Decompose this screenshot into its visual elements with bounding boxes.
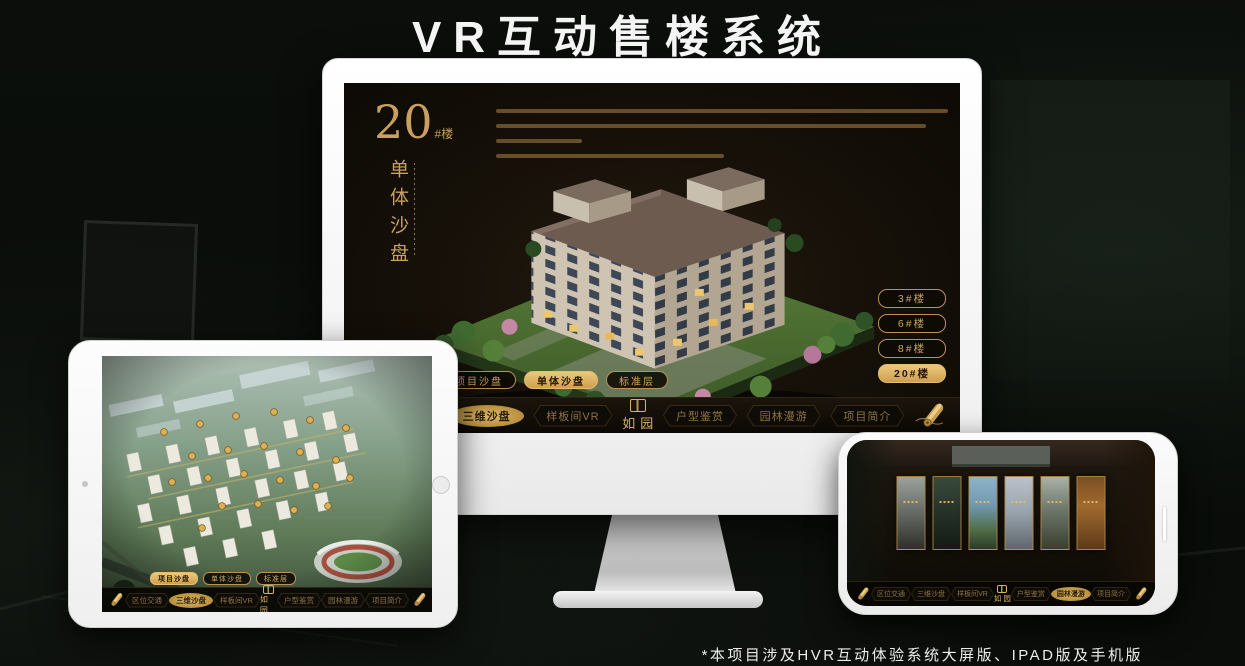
scroll-icon[interactable]: [1131, 584, 1149, 604]
brand-logo: 如园: [622, 399, 653, 432]
nav-item-garden-tour[interactable]: 园林漫游: [1051, 587, 1091, 601]
nav-item-project-intro[interactable]: 项目简介: [1091, 587, 1131, 601]
tablet-home-button[interactable]: [432, 476, 450, 494]
phone-home-indicator: [1163, 507, 1166, 541]
building-button-label: 3#楼: [898, 291, 926, 306]
block-number: 20: [374, 95, 433, 149]
nav-item-3d-sandtable[interactable]: 三维沙盘: [450, 405, 524, 427]
description-text-lines: [496, 109, 948, 169]
gallery-panel-3[interactable]: [969, 476, 998, 550]
nav-item-floorplan-gallery[interactable]: 户型鉴赏: [1011, 587, 1051, 601]
nav-item-floorplan-gallery[interactable]: 户型鉴赏: [663, 405, 737, 427]
nav-item-label: 户型鉴赏: [676, 408, 724, 424]
nav-item-label: 园林漫游: [760, 408, 808, 424]
nav-item-3d-sandtable[interactable]: 三维沙盘: [911, 587, 951, 601]
building-button-label: 20#楼: [894, 366, 930, 381]
tablet-camera-icon: [82, 481, 88, 487]
background-aerial-texture: [990, 80, 1230, 380]
subtab-standard-floor[interactable]: 标准层: [256, 572, 296, 585]
nav-item-label: 园林漫游: [328, 595, 358, 606]
background-picture-frame: [80, 220, 198, 344]
brand-logo-text: 如园: [622, 413, 658, 432]
brand-logo: 如园: [994, 585, 1011, 604]
scroll-icon[interactable]: [409, 589, 428, 611]
building-button-3[interactable]: 3#楼: [878, 289, 946, 308]
nav-item-label: 园林漫游: [1057, 589, 1085, 599]
text-line: [496, 139, 582, 143]
subtab-project-sandtable[interactable]: 项目沙盘: [150, 572, 198, 585]
decorative-vertical-rule: [414, 163, 415, 255]
nav-item-label: 样板间VR: [220, 595, 253, 606]
nav-item-label: 三维沙盘: [917, 589, 945, 599]
page-title: VR互动售楼系统: [0, 1, 1245, 65]
nav-item-location-traffic[interactable]: 区位交通: [125, 593, 169, 608]
block-headline: 20#楼: [374, 99, 453, 145]
nav-item-model-room-vr[interactable]: 样板间VR: [951, 587, 994, 601]
nav-item-label: 项目简介: [1097, 589, 1125, 599]
nav-item-3d-sandtable[interactable]: 三维沙盘: [169, 593, 213, 608]
nav-item-floorplan-gallery[interactable]: 户型鉴赏: [277, 593, 321, 608]
building-button-8[interactable]: 8#楼: [878, 339, 946, 358]
building-selector: 3#楼 6#楼 8#楼 20#楼: [878, 289, 946, 383]
nav-item-label: 区位交通: [132, 595, 162, 606]
tablet-device: 项目沙盘 单体沙盘 标准层 区位交通 三维沙盘 样板间VR 如园 户型鉴赏 园林…: [68, 340, 458, 628]
building-button-6[interactable]: 6#楼: [878, 314, 946, 333]
nav-item-label: 项目简介: [372, 595, 402, 606]
building-button-20[interactable]: 20#楼: [878, 364, 946, 383]
block-subtitle-vertical: 单体沙盘: [384, 159, 411, 271]
nav-item-label: 样板间VR: [546, 408, 599, 424]
sandtable-subtabs: 项目沙盘 单体沙盘 标准层: [442, 371, 668, 389]
scroll-icon[interactable]: [106, 589, 125, 611]
subtab-single-sandtable[interactable]: 单体沙盘: [524, 371, 598, 389]
subtab-label: 标准层: [619, 373, 655, 388]
phone-navbar: 区位交通 三维沙盘 样板间VR 如园 户型鉴赏 园林漫游 项目简介: [847, 581, 1155, 606]
nav-item-location-traffic[interactable]: 区位交通: [871, 587, 911, 601]
gallery-panel-4[interactable]: [1005, 476, 1034, 550]
nav-item-label: 项目简介: [843, 408, 891, 424]
nav-item-model-room-vr[interactable]: 样板间VR: [533, 405, 612, 427]
nav-item-project-intro[interactable]: 项目简介: [830, 405, 904, 427]
scroll-icon[interactable]: [914, 400, 948, 432]
footnote-text: *本项目涉及HVR互动体验系统大屏版、IPAD版及手机版: [702, 644, 1143, 665]
subtab-label: 单体沙盘: [537, 373, 585, 388]
nav-item-label: 三维沙盘: [463, 408, 511, 424]
subtab-label: 标准层: [264, 574, 288, 584]
nav-item-label: 户型鉴赏: [284, 595, 314, 606]
nav-item-garden-tour[interactable]: 园林漫游: [747, 405, 821, 427]
building-button-label: 8#楼: [898, 341, 926, 356]
tablet-screen: 项目沙盘 单体沙盘 标准层 区位交通 三维沙盘 样板间VR 如园 户型鉴赏 园林…: [102, 356, 432, 612]
text-line: [496, 109, 948, 113]
monitor-stand-base: [553, 591, 763, 608]
nav-item-label: 区位交通: [877, 589, 905, 599]
brand-logo: 如园: [260, 585, 277, 613]
subtab-label: 项目沙盘: [455, 373, 503, 388]
gallery-panel-1[interactable]: [897, 476, 926, 550]
scene-gallery: [897, 476, 1106, 550]
seal-icon: [630, 399, 646, 412]
text-line: [496, 124, 926, 128]
subtab-label: 项目沙盘: [158, 574, 190, 584]
subtab-standard-floor[interactable]: 标准层: [606, 371, 668, 389]
nav-item-model-room-vr[interactable]: 样板间VR: [213, 593, 260, 608]
block-number-unit: #楼: [435, 127, 454, 141]
nav-item-label: 户型鉴赏: [1017, 589, 1045, 599]
nav-item-label: 三维沙盘: [176, 595, 206, 606]
scroll-icon[interactable]: [853, 584, 871, 604]
monitor-stand-neck: [593, 510, 737, 598]
gallery-panel-2[interactable]: [933, 476, 962, 550]
seal-icon: [997, 585, 1007, 593]
gallery-panel-5[interactable]: [1041, 476, 1070, 550]
nav-item-label: 样板间VR: [957, 589, 988, 599]
subtab-label: 单体沙盘: [211, 574, 243, 584]
nav-item-project-intro[interactable]: 项目简介: [365, 593, 409, 608]
seal-icon: [263, 585, 274, 594]
subtab-single-sandtable[interactable]: 单体沙盘: [203, 572, 251, 585]
nav-item-garden-tour[interactable]: 园林漫游: [321, 593, 365, 608]
interior-gate-structure: [952, 446, 1051, 467]
gallery-panel-6[interactable]: [1077, 476, 1106, 550]
phone-screen: 区位交通 三维沙盘 样板间VR 如园 户型鉴赏 园林漫游 项目简介: [847, 440, 1155, 606]
tablet-navbar: 区位交通 三维沙盘 样板间VR 如园 户型鉴赏 园林漫游 项目简介: [102, 587, 432, 612]
building-button-label: 6#楼: [898, 316, 926, 331]
phone-device: 区位交通 三维沙盘 样板间VR 如园 户型鉴赏 园林漫游 项目简介: [838, 432, 1178, 615]
stage: VR互动售楼系统: [0, 0, 1245, 666]
tablet-sandtable-subtabs: 项目沙盘 单体沙盘 标准层: [150, 572, 296, 585]
text-line: [496, 154, 724, 158]
